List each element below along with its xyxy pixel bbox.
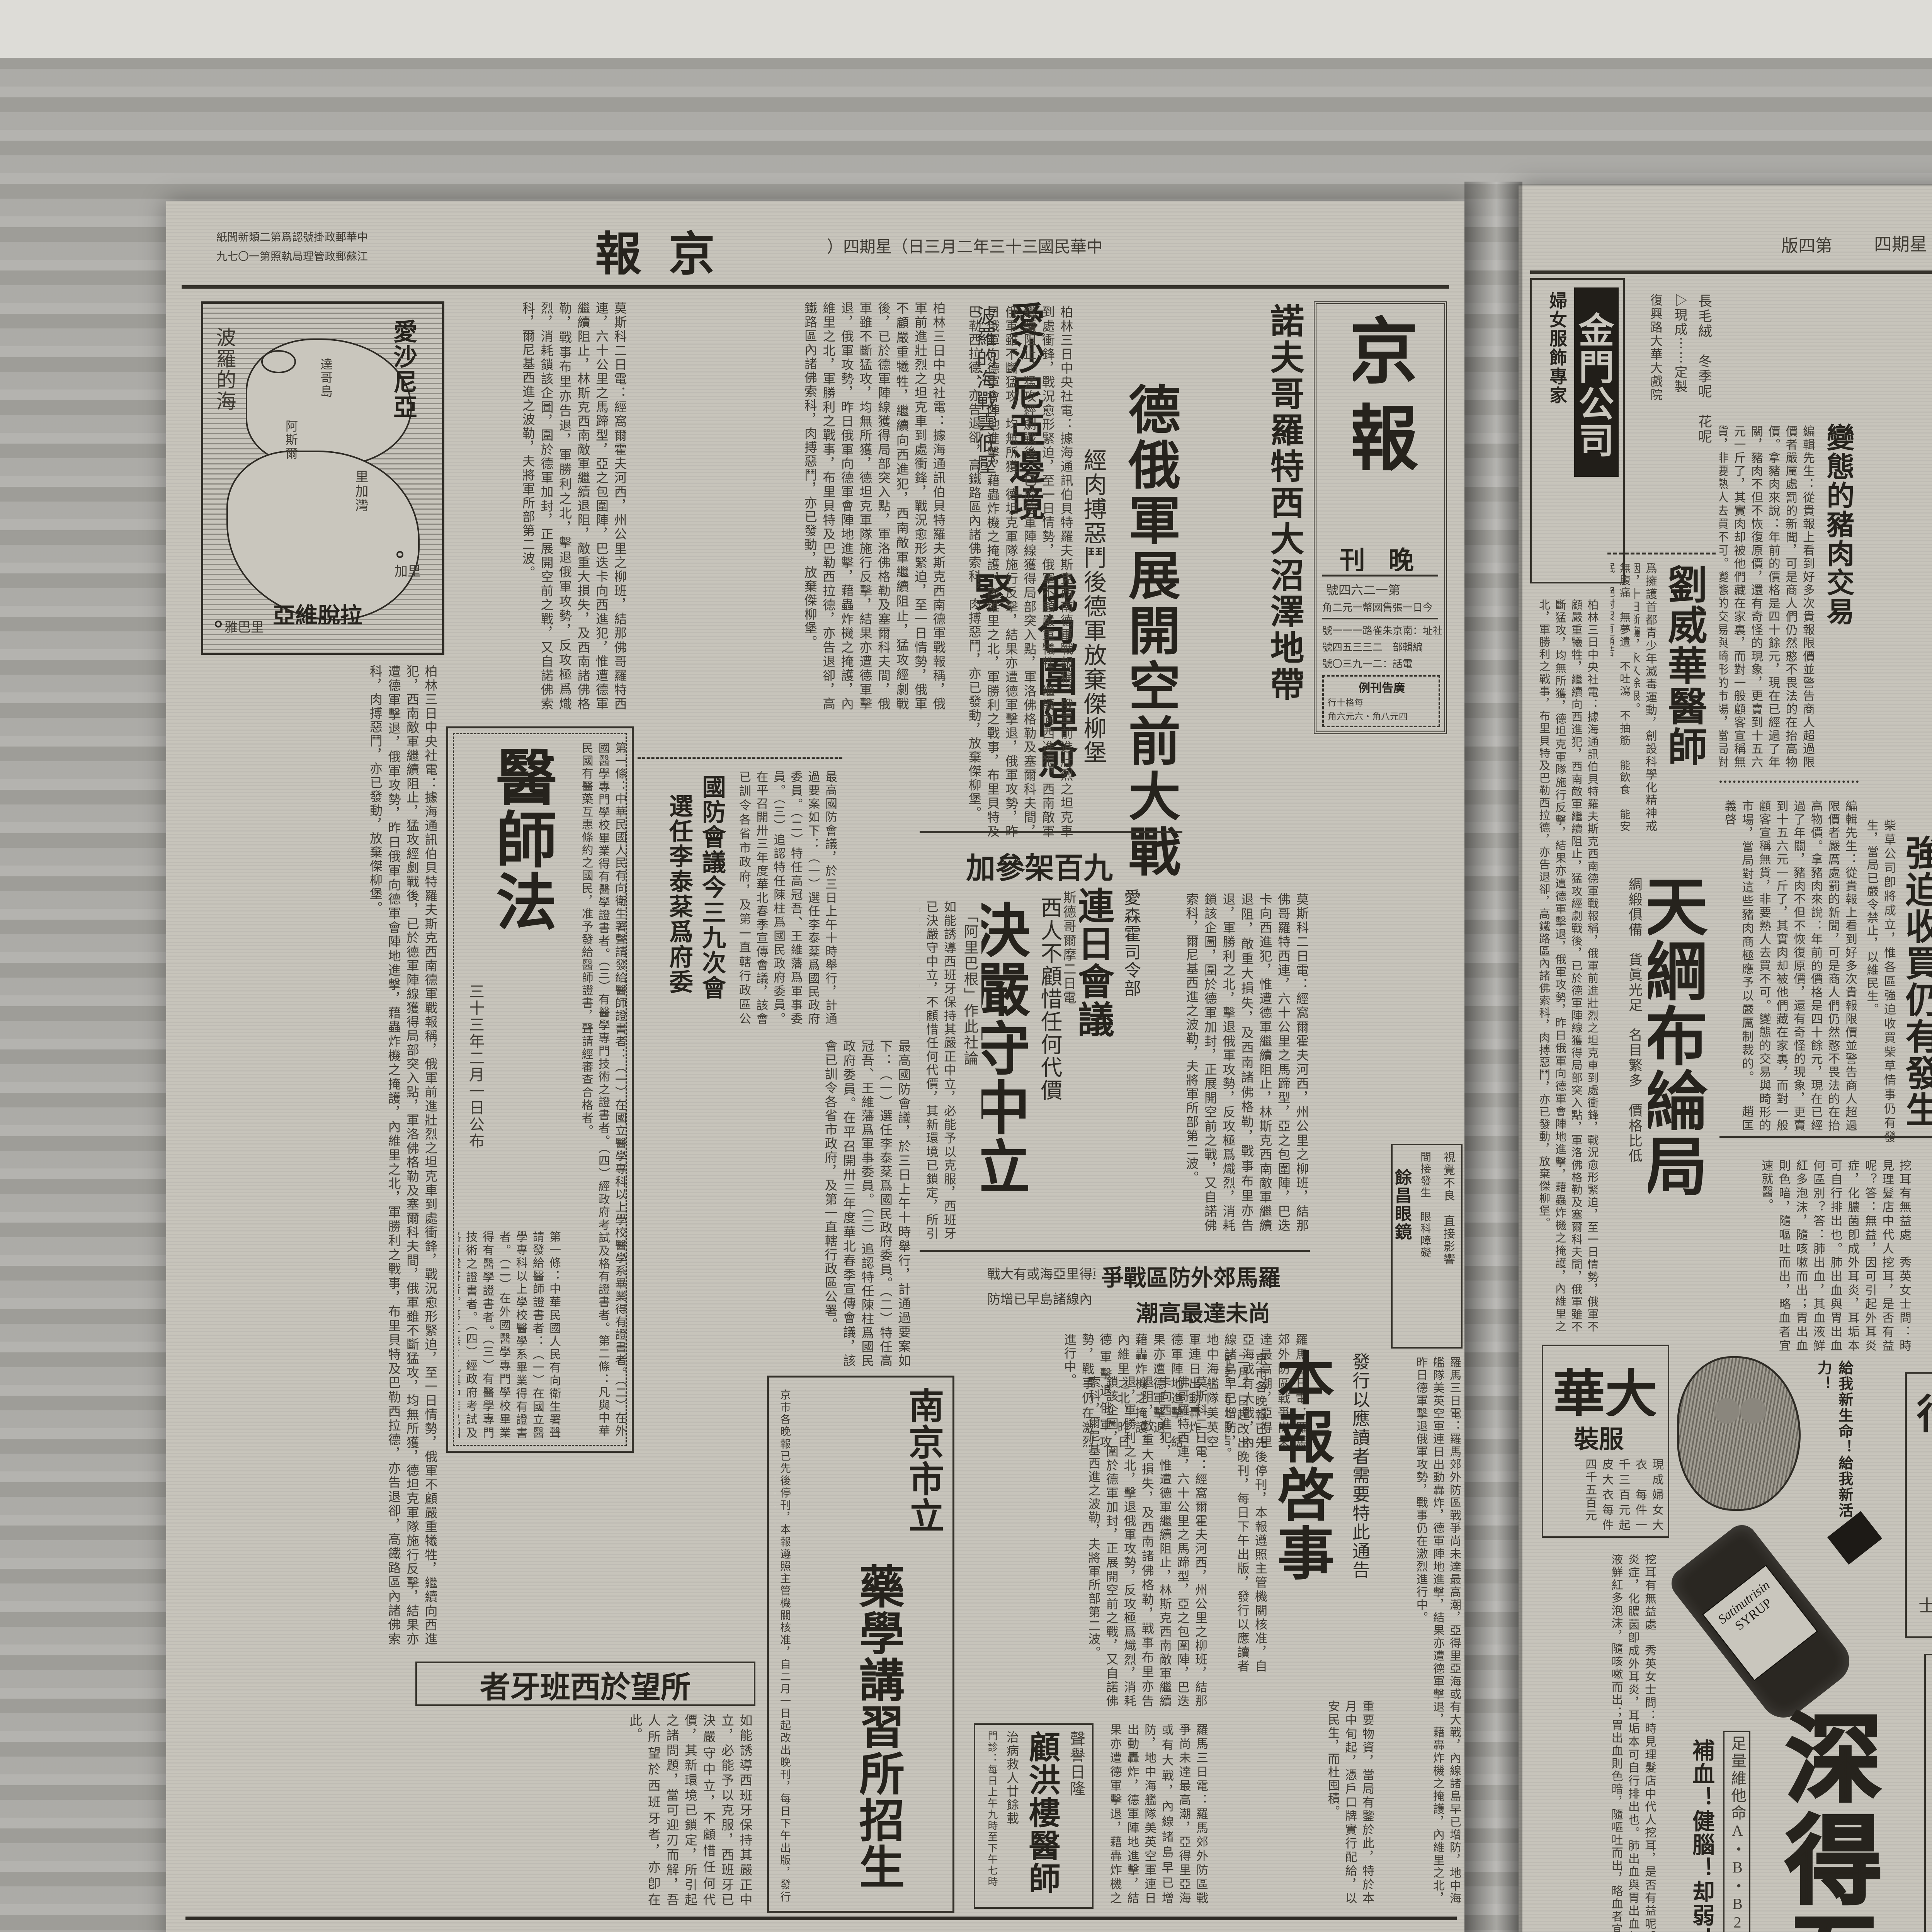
- jinmen-tag: 婦女服飾專家: [1543, 291, 1570, 469]
- tonic-slogan: 給我新生命！給我新活力！: [1808, 1360, 1855, 1522]
- page-right-day: 四期星: [1874, 230, 1932, 254]
- notice-title: 本報啓事: [1275, 1349, 1341, 1600]
- ad-rates-title: 例刊告廣: [1359, 679, 1420, 694]
- doctor-law-box: 醫師法 三十三年二月一日公布 第一條：中華民國人民有向衛生署聲請發給醫師證書者：…: [446, 726, 634, 1453]
- masthead-address: 號一一一路雀朱京南：址社: [1322, 623, 1442, 638]
- map-label-dago: 達哥島: [319, 358, 335, 427]
- dahua-lines: 現成婦女大衣 每件一千三百元起 皮大衣每件四千五百元: [1549, 1458, 1665, 1532]
- law-note: 三十三年二月一日公布: [466, 983, 486, 1215]
- map-city-riga-dot: [396, 551, 403, 558]
- neutrality-body: 如能誘導西班牙保持其嚴正中立，必能予以克服，西班牙已決嚴守中立，不顧惜任何代價，…: [920, 900, 958, 1240]
- war-news-columns: 柏林三日中央社電：據海通訊伯貝特羅夫斯克西南德軍戰報稱，俄軍前進壯烈之坦克車到處…: [638, 301, 947, 711]
- map-label-estonia: 愛沙尼亞: [389, 319, 420, 481]
- war-headline: 德俄軍展開空前大戰: [1119, 383, 1186, 896]
- bank-ad: 行銀市京南 營業要目 收受存款、辦理匯兌、票據貼現、代理收付等一切銀行業務。 士…: [1905, 1372, 1932, 1638]
- lower-mid-columns-2: 羅馬三日電：羅馬郊外防區戰爭尚未達最高潮，亞得里亞海或有大戰，內線諸島早已增防，…: [1109, 1723, 1209, 1905]
- notice-body: 京市各晚報已先後停刊，本報遵照主管機關核准，自二月一日起改出晚刊，每日下午出版，…: [1225, 1352, 1269, 1673]
- mid-left-columns: 最高國防會議，於三日上午十時舉行，計通過要案如下：（一）選任李泰棻爲國民政府委員…: [638, 1039, 912, 1368]
- rome-headline-2: 潮高最達未尚: [1136, 1295, 1310, 1326]
- fabric-line-1: 長毛絨 冬季呢 花呢: [1692, 294, 1714, 533]
- masthead-title: 京報: [1353, 314, 1427, 530]
- pharmacy-school-ad: 南京市立 藥學講習所招生 京市各晚報已先後停刊，本報遵照主管機關核准，自二月一日…: [767, 1376, 954, 1913]
- law-body-right: 第一條：中華民國人民有向衛生署聲請發給醫師證書者：（一）在國立醫學專科以上學校醫…: [566, 742, 628, 1437]
- postal-line-1: 紙聞新類二第爲認號掛政郵華中: [216, 228, 564, 247]
- section-rule-1: [920, 831, 1182, 833]
- scanner-top-band: [0, 0, 1932, 58]
- eisenhower-body: 莫斯科二日電：經窩爾霍夫河西，州公里之柳班，結那佛哥羅特西連，六十公里之馬蹄型，…: [1144, 893, 1310, 1233]
- war-subhead: 經肉搏惡鬥後德軍放棄傑柳堡: [1082, 448, 1110, 827]
- law-title: 醫師法: [493, 746, 564, 962]
- gu-title: 顧洪樓醫師: [1024, 1731, 1064, 1905]
- spain-body: 如能誘導西班牙保持其嚴正中立，必能予以克服，西班牙已決嚴守中立，不顧惜任何代價，…: [209, 1714, 753, 1907]
- map-city-libava-dot: [215, 621, 222, 628]
- yuchang-title: 餘昌眼鏡: [1395, 1168, 1414, 1331]
- tonic-panel: ●進補「維他賜保命」後幾個顯明的傚果 辦事勞而不倦 進餐胃口大開 體重逐漸增加 …: [1924, 1654, 1932, 1932]
- section-rule-2: [920, 1250, 1310, 1252]
- jinfen-restaurant-banner: 家酒粉金 春節休業期滿 獻貢新之後正新 業營常照起日今 點早售停 潔整求力 賓來…: [185, 1917, 1457, 1932]
- eisenhower-headline: 連日會議: [1079, 887, 1119, 1068]
- estonia-map: 波羅的海 愛沙尼亞 亞維脫拉 達哥島 阿斯爾 里加灣 加里 雅巴里: [201, 301, 444, 655]
- bank-title: 行銀市京南: [1917, 1381, 1932, 1434]
- yuchang-glasses-ad: 視覺不良 直接影響 間接發生 眼科障礙 餘昌眼鏡: [1391, 1144, 1463, 1349]
- gu-doctor-ad: 聲譽日隆 顧洪樓醫師 治病救人廿餘載 門診：每日上午九時至下午七時: [974, 1723, 1094, 1909]
- tiangang-title: 天綱布綸局: [1648, 873, 1716, 1198]
- law-body-bottom: 第一條：中華民國人民有向衛生署聲請發給醫師證書者：（一）在國立醫學專科以上學校醫…: [458, 1231, 562, 1439]
- dahua-clothing-ad: 華大 裝服 現成婦女大衣 每件一千三百元起 皮大衣每件四千五百元: [1542, 1345, 1669, 1538]
- fabric-ad: 長毛絨 冬季呢 花呢 ▷現成⋯⋯定製 復興路大華大戲院: [1642, 290, 1719, 537]
- fold-right-columns: 柏林三日中央社電：據海通訊伯貝特羅夫斯克西南德軍戰報稱，俄軍前進壯烈之坦克車到處…: [1530, 599, 1600, 1333]
- masthead-rule-2: [1322, 618, 1438, 619]
- page-left-date: ）四期星（日三月二年三十三國民華中: [827, 234, 1329, 261]
- liu-title: 劉威華醫師: [1662, 564, 1712, 804]
- postal-registration: 紙聞新類二第爲認號掛政郵華中 九七〇一第照執局理管政郵蘇江: [216, 228, 564, 274]
- tonic-vitamins: 足量維他命A・B・B2・C・D及造血質肝精: [1723, 1731, 1750, 1932]
- eisenhower-kicker: 愛森霍司令部: [1121, 889, 1143, 1051]
- yuchang-line-1: 視覺不良 直接影響: [1433, 1151, 1456, 1344]
- planes-headline: 加參架百九: [966, 844, 1121, 881]
- bank-names: 士譔孫 謙承王: [1918, 1592, 1932, 1619]
- neutrality-note: 「阿里巴根」作此社論: [961, 908, 980, 1186]
- spain-title: 者牙班西於望所: [415, 1662, 755, 1706]
- bank-body: 收受存款、辦理匯兌、票據貼現、代理收付等一切銀行業務。: [1918, 1443, 1932, 1582]
- masthead-price: 角二元一幣國售張一日今: [1322, 600, 1442, 615]
- spain-editorial: 者牙班西於望所 如能誘導西班牙保持其嚴正中立，必能予以克服，西班牙已決嚴守中立，…: [205, 1658, 757, 1913]
- gu-line-1: 治病救人廿餘載: [1002, 1731, 1021, 1905]
- dahua-subtitle: 裝服: [1574, 1420, 1644, 1452]
- neutrality-headline: 決嚴守中立: [981, 900, 1037, 1248]
- tiangang-lines: 綢緞俱備 貨眞光足 名目繁多 價格比低: [1605, 877, 1644, 1194]
- gu-line-2: 門診：每日上午九時至下午七時: [979, 1731, 999, 1905]
- rome-headline-1: 爭戰區防外郊馬羅: [1101, 1260, 1310, 1291]
- war-body: 柏林三日中央社電：據海通訊伯貝特羅夫斯克西南德軍戰報稱，俄軍前進壯烈之坦克車到處…: [920, 305, 1074, 838]
- page-fold: [1464, 182, 1522, 1932]
- map-label-riga-gulf: 里加灣: [354, 470, 369, 539]
- page-right-edition: 版四第: [1781, 232, 1859, 255]
- far-left-columns: 柏林三日中央社電：據海通訊伯貝特羅夫斯克西南德軍戰報稱，俄軍前進壯烈之坦克車到處…: [201, 665, 439, 1646]
- neutrality-kicker: 西人不顧惜任何代價: [1040, 896, 1065, 1213]
- masthead-box: 京報 刊晚 號四六二一第 角二元一幣國售張一日今 號一一一路雀朱京南：址社 號四…: [1314, 301, 1447, 734]
- gu-kicker: 聲譽日隆: [1068, 1731, 1087, 1847]
- jinmen-title: 金門公司: [1574, 287, 1619, 477]
- masthead-phone-2: 號〇三九一二：話電: [1322, 656, 1442, 671]
- lower-mid-columns: 莫斯科二日電：經窩爾霍夫河西，州公里之柳班，結那佛哥羅特西連，六十公里之馬蹄型，…: [974, 1376, 1209, 1708]
- notice-lower-columns: 重要物資，當局有鑒於此，特於本月中旬起，憑戶口牌實行配給，以安民生，而杜囤積。: [1225, 1700, 1376, 1905]
- header-rule-left: [182, 285, 1449, 289]
- qa-question-1: 挖耳有無益處: [1926, 1159, 1932, 1329]
- header-rule-right: [1530, 270, 1932, 274]
- pharmacy-body: 京市各晚報已先後停刊，本報遵照主管機關核准，自二月一日起改出晚刊，每日下午出版，…: [775, 1389, 792, 1903]
- pharmacy-kicker: 南京市立: [910, 1387, 949, 1557]
- liu-body: 爲擁護首都青少年滅毒運動，創設科學化精神戒烟，十日斷癮，永久除根。: [1634, 562, 1658, 833]
- pharmacy-title: 藥學講習所招生: [790, 1563, 906, 1903]
- defense-article: 國防會議今三九次會 選任李泰棻爲府委 最高國防會議，於三日上午十時舉行，計通過要…: [638, 757, 842, 1028]
- ad-rate-1: 行十格每: [1328, 695, 1436, 708]
- tiangang-fabric-ad: 天綱布綸局 綢緞俱備 貨眞光足 名目繁多 價格比低: [1604, 869, 1716, 1202]
- map-label-baltic-sea: 波羅的海: [211, 327, 238, 528]
- tonic-face-illustration: [1677, 1356, 1801, 1511]
- letter-columns-2: 編輯先生：從貴報上看到好多次貴報限價並警告商人超過限價者嚴厲處罰的新聞，可是商人…: [1719, 800, 1859, 1132]
- war-kicker: 諾夫哥羅特西大沼澤地帶: [1269, 303, 1308, 724]
- defense-body: 最高國防會議，於三日上午十時舉行，計通過要案如下：（一）選任李泰棻爲國民政府委員…: [734, 770, 838, 1026]
- yuchang-line-2: 間接發生 眼科障礙: [1414, 1151, 1432, 1344]
- jinmen-ad: 金門公司 婦女服飾專家: [1530, 278, 1625, 583]
- tonic-effects: 補血！健腦！却弱！: [1681, 1739, 1718, 1932]
- map-label-latvia: 亞維脫拉: [273, 597, 389, 624]
- masthead-rule: [1322, 575, 1438, 577]
- pork-letter-body: 編輯先生：從貴報上看到好多次貴報限價並警告商人超過限價者嚴厲處罰的新聞，可是商人…: [1719, 425, 1816, 769]
- fold-right-lower-columns: 挖耳有無益處 秀英女士問：時見理髮店中代人挖耳，是否有益呢？答：無益，因可引起外…: [1530, 1553, 1658, 1932]
- masthead-edition: 刊晚: [1340, 540, 1429, 571]
- map-city-riga: 加里: [395, 561, 429, 578]
- fold-left-columns: 羅馬三日電：羅馬郊外防區戰爭尚未達最高潮，亞得里亞海或有大戰，內線諸島早已增防，…: [1391, 1356, 1463, 1905]
- page-left-title: 報京: [595, 216, 734, 278]
- estonia-article-body: 莫斯科二日電：經窩爾霍夫河西，州公里之柳班，結那佛哥羅特西連，六十公里之馬蹄型，…: [450, 301, 628, 711]
- masthead-phone-1: 號四五三三二 部輯編: [1322, 639, 1442, 654]
- firewood-headline-2: 強迫收買仍有發生: [1901, 835, 1932, 1155]
- banner-main: 業營常照起日今: [191, 1930, 906, 1932]
- postal-line-2: 九七〇一第照執局理管政郵蘇江: [216, 247, 564, 267]
- liu-features: 無腹痛 無夢遺 不吐瀉 不抽筋 能飲食 能安眠 絕對沒有痛苦: [1611, 562, 1632, 833]
- map-island: [261, 350, 296, 373]
- ad-rates-box: 例刊告廣 行十格每 角六元六・角八元四: [1322, 675, 1440, 727]
- section-rule-4: [1719, 1136, 1932, 1138]
- rome-subhead-2: 防增已早島諸線內: [987, 1289, 1095, 1308]
- notice-side: 發行以應讀者需要特此通告: [1349, 1352, 1372, 1669]
- pork-letter-title: 變態的豬肉交易: [1822, 423, 1857, 667]
- city-news-columns: 特訊：京市甲組織，自於前年調查組織以來，對於戶口移動等情，因歷時漸久，致未能臻於…: [1870, 448, 1932, 796]
- tonic-title: 深得吾心: [1781, 1708, 1893, 1932]
- map-city-libava: 雅巴里: [224, 617, 279, 634]
- wavy-rule: [1719, 781, 1859, 783]
- masthead-issue: 號四六二一第: [1326, 580, 1438, 598]
- defense-headline-2: 選任李泰棻爲府委: [667, 794, 696, 1018]
- rome-subhead-1: 戰大有或海亞里得亞: [987, 1264, 1095, 1283]
- qa-body: 挖耳有無益處 秀英女士問：時見理髮店中代人挖耳，是否有益呢？答：無益，因可引起外…: [1719, 1159, 1913, 1352]
- defense-headline-1: 國防會議今三九次會: [699, 774, 728, 1022]
- map-label-osel: 阿斯爾: [284, 420, 300, 478]
- liu-doctor-ad: 劉威華醫師 爲擁護首都青少年滅毒運動，創設科學化精神戒烟，十日斷癮，永久除根。 …: [1607, 553, 1716, 838]
- dahua-title: 華大: [1553, 1352, 1665, 1416]
- ad-rate-2: 角六元六・角八元四: [1328, 709, 1436, 722]
- fabric-address: 復興路大華大戲院: [1646, 294, 1665, 533]
- fabric-line-2: ▷現成⋯⋯定製: [1669, 294, 1689, 533]
